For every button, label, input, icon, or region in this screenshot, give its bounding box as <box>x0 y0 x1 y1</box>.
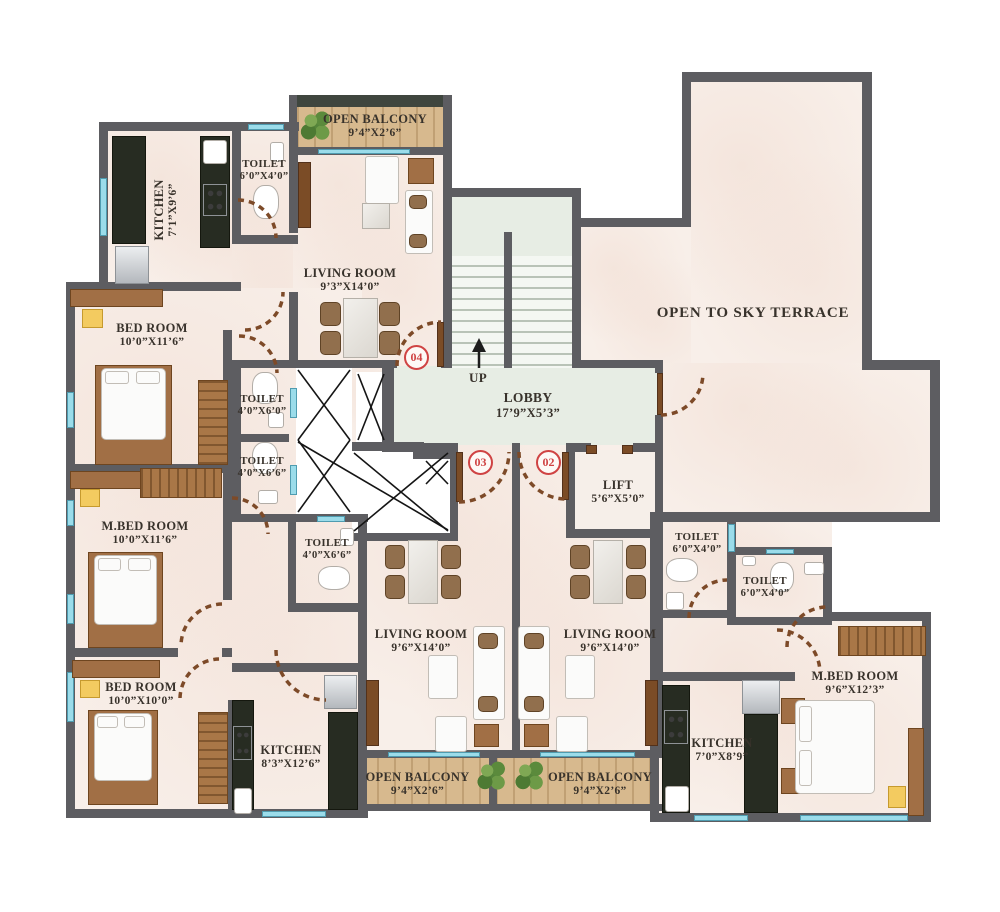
dining-chair <box>441 575 461 599</box>
plant <box>476 758 508 794</box>
side-table <box>408 158 434 184</box>
room-label-toilet-mid3: TOILET 4’0”X6’6” <box>292 537 362 562</box>
room-label-bedroom-04: BED ROOM 10’0”X11’6” <box>87 321 217 349</box>
fridge <box>324 675 357 709</box>
dining-table <box>593 540 623 604</box>
bed-pillow <box>98 558 121 571</box>
wall <box>655 363 663 373</box>
unit-badge-04: 04 <box>404 345 429 370</box>
room-label-balcony-br: OPEN BALCONY 9’4”X2’6” <box>535 770 665 798</box>
tv-unit <box>366 680 379 746</box>
room-name: LIFT <box>603 478 633 492</box>
floor-plan: KITCHEN 7’1”X9’6” TOILET 6’0”X4’0” OPEN … <box>0 0 1000 912</box>
up-text: UP <box>469 370 487 385</box>
room-label-toilet-mid1: TOILET 4’0”X6’0” <box>227 393 297 418</box>
room-name: LIVING ROOM <box>304 266 397 280</box>
stair-flight-right <box>512 256 572 368</box>
room-label-terrace: OPEN TO SKY TERRACE <box>633 305 873 322</box>
wall <box>736 617 832 625</box>
window <box>318 149 410 154</box>
room-name: KITCHEN <box>691 736 752 750</box>
bed-pillow <box>124 716 145 728</box>
unit-number: 03 <box>475 455 487 470</box>
room-dim: 5’6”X5’0” <box>578 493 658 506</box>
wall <box>232 122 241 244</box>
fridge <box>115 246 149 284</box>
room-dim: 9’6”X14’0” <box>356 642 486 655</box>
coffee-table <box>565 655 595 699</box>
room-label-balcony-bl: OPEN BALCONY 9’4”X2’6” <box>355 770 480 798</box>
toilet-sink <box>804 562 824 575</box>
dresser <box>72 660 160 678</box>
room-label-living-04: LIVING ROOM 9’3”X14’0” <box>285 266 415 294</box>
coffee-table <box>428 655 458 699</box>
wall <box>566 529 663 538</box>
kitchen-sink <box>203 140 227 164</box>
toilet-sink <box>742 556 756 566</box>
room-name: TOILET <box>242 158 286 170</box>
stairs-up-label: UP <box>458 370 498 385</box>
bed-pillow <box>799 706 812 742</box>
bed-pillow <box>799 750 812 786</box>
room-name: TOILET <box>240 393 284 405</box>
toilet-wc <box>318 566 350 590</box>
wall <box>581 218 691 227</box>
dresser <box>70 289 163 307</box>
room-name: OPEN BALCONY <box>323 112 427 126</box>
room-label-mbed-01: M.BED ROOM 9’6”X12’3” <box>785 669 925 697</box>
wall <box>823 547 832 621</box>
window <box>67 392 74 428</box>
dining-chair <box>385 575 405 599</box>
room-name: LOBBY <box>504 390 553 405</box>
wall <box>358 804 664 811</box>
room-label-toilet-01b: TOILET 6’0”X4’0” <box>727 575 803 600</box>
dining-chair <box>379 331 400 355</box>
window <box>67 594 74 624</box>
wall <box>222 648 232 657</box>
room-dim: 9’3”X14’0” <box>285 281 415 294</box>
wardrobe <box>198 380 228 465</box>
bed-pillow <box>136 371 160 384</box>
room-name: TOILET <box>675 531 719 543</box>
bed-pillow <box>105 371 129 384</box>
wardrobe <box>198 712 228 804</box>
tv-unit <box>298 162 311 228</box>
toilet-sink <box>258 490 278 504</box>
wall <box>352 533 458 541</box>
room-label-toilet-mid2: TOILET 4’0”X6’6” <box>227 455 297 480</box>
wall <box>241 434 289 442</box>
side-table <box>524 724 549 747</box>
wall <box>633 443 663 452</box>
room-name: LIVING ROOM <box>375 627 468 641</box>
room-label-kitchen-04: KITCHEN 7’1”X9’6” <box>152 155 180 265</box>
dining-chair <box>320 331 341 355</box>
dining-chair <box>385 545 405 569</box>
room-dim: 7’1”X9’6” <box>167 155 180 265</box>
room-dim: 4’0”X6’0” <box>227 406 297 418</box>
wall <box>443 188 581 197</box>
room-dim: 6’0”X4’0” <box>727 588 803 600</box>
side-table <box>474 724 499 747</box>
room-name: KITCHEN <box>152 179 166 240</box>
floor-terrace-left <box>581 227 691 366</box>
room-label-balcony-top: OPEN BALCONY 9’4”X2’6” <box>310 112 440 140</box>
window <box>100 178 107 236</box>
dining-table <box>408 540 438 604</box>
window <box>800 815 908 821</box>
dining-chair <box>379 302 400 326</box>
room-label-lobby: LOBBY 17’9”X5’3” <box>458 390 598 420</box>
armchair <box>435 716 467 752</box>
room-name: M.BED ROOM <box>811 669 898 683</box>
wardrobe <box>140 468 222 498</box>
window <box>388 752 480 757</box>
window <box>67 672 74 722</box>
lift-door-jamb <box>586 445 597 454</box>
balcony-parapet <box>289 95 452 107</box>
wall <box>862 360 940 370</box>
dining-chair <box>626 575 646 599</box>
armchair <box>365 156 399 204</box>
stair-divider <box>504 232 512 368</box>
room-name: BED ROOM <box>105 680 177 694</box>
toilet-sink <box>666 592 684 610</box>
room-name: M.BED ROOM <box>101 519 188 533</box>
window <box>262 811 326 817</box>
sofa-cushion <box>409 234 427 248</box>
room-name: TOILET <box>240 455 284 467</box>
room-name: BED ROOM <box>116 321 188 335</box>
room-dim: 4’0”X6’6” <box>227 468 297 480</box>
room-dim: 9’4”X2’6” <box>355 785 480 798</box>
dining-chair <box>441 545 461 569</box>
stool <box>888 786 906 808</box>
room-label-toilet-01a: TOILET 6’0”X4’0” <box>659 531 735 556</box>
room-label-mbed-left: M.BED ROOM 10’0”X11’6” <box>75 519 215 547</box>
dining-table <box>343 298 378 358</box>
wall <box>232 235 298 244</box>
kitchen-cabinet <box>112 136 146 244</box>
toilet-wc <box>666 558 698 582</box>
room-dim: 10’0”X11’6” <box>75 534 215 547</box>
wall <box>862 72 872 370</box>
kitchen-sink <box>234 788 252 814</box>
room-dim: 10’0”X11’6” <box>87 336 217 349</box>
bed-pillow <box>97 716 118 728</box>
door-leaf <box>437 322 444 367</box>
stair-flight-left <box>452 256 504 368</box>
door-leaf <box>657 373 663 415</box>
door-leaf <box>562 452 569 500</box>
wall <box>682 72 691 224</box>
toilet-wc <box>253 185 279 219</box>
wall <box>650 610 736 618</box>
wall <box>682 72 872 82</box>
wall <box>223 464 232 600</box>
wall <box>572 188 581 368</box>
wardrobe <box>838 626 926 656</box>
kitchen-sink <box>665 786 689 812</box>
room-label-toilet-04: TOILET 6’0”X4’0” <box>229 158 299 183</box>
room-dim: 8’3”X12’6” <box>226 758 356 771</box>
sofa-cushion <box>409 195 427 209</box>
room-dim: 7’0”X8’9” <box>657 751 787 764</box>
wall <box>382 360 390 452</box>
wall <box>232 663 367 672</box>
room-label-living-02: LIVING ROOM 9’6”X14’0” <box>545 627 675 655</box>
wall <box>232 360 368 368</box>
dining-chair <box>570 545 590 569</box>
window <box>248 124 284 130</box>
stool <box>80 489 100 507</box>
room-label-bedroom-3: BED ROOM 10’0”X10’0” <box>76 680 206 708</box>
room-name: TOILET <box>305 537 349 549</box>
wall <box>289 292 298 368</box>
unit-number: 04 <box>411 350 423 365</box>
lift-door-jamb <box>622 445 633 454</box>
window <box>694 815 748 821</box>
window <box>540 752 635 757</box>
room-label-lift: LIFT 5’6”X5’0” <box>578 478 658 506</box>
unit-badge-02: 02 <box>536 450 561 475</box>
dining-chair <box>570 575 590 599</box>
duct-void-1 <box>296 368 352 514</box>
room-dim: 6’0”X4’0” <box>229 171 299 183</box>
room-label-kitchen-01: KITCHEN 7’0”X8’9” <box>657 736 787 764</box>
wall <box>66 648 178 657</box>
washing-machine <box>742 680 780 714</box>
room-dim: 6’0”X4’0” <box>659 544 735 556</box>
wall <box>288 522 296 612</box>
wall <box>443 188 452 368</box>
room-dim: 4’0”X6’6” <box>292 550 362 562</box>
room-dim: 9’4”X2’6” <box>535 785 665 798</box>
armchair <box>556 716 588 752</box>
wall <box>930 360 940 522</box>
room-dim: 9’4”X2’6” <box>310 127 440 140</box>
duct-void-4 <box>424 459 450 486</box>
room-dim: 9’6”X12’3” <box>785 684 925 697</box>
wall <box>288 603 367 612</box>
stove <box>203 184 227 216</box>
floor-terrace-lower <box>663 363 931 513</box>
unit-number: 02 <box>543 455 555 470</box>
room-label-living-03: LIVING ROOM 9’6”X14’0” <box>356 627 486 655</box>
wall <box>232 360 241 522</box>
bed-pillow <box>128 558 151 571</box>
dining-chair <box>320 302 341 326</box>
window <box>317 516 345 522</box>
coffee-table <box>362 203 390 229</box>
room-dim: 9’6”X14’0” <box>545 642 675 655</box>
room-dim: 17’9”X5’3” <box>458 406 598 421</box>
wall <box>650 512 940 522</box>
room-dim: 10’0”X10’0” <box>76 695 206 708</box>
wall <box>289 95 297 150</box>
wall <box>832 612 931 621</box>
room-name: OPEN BALCONY <box>366 770 470 784</box>
door-leaf <box>456 452 463 502</box>
room-name: TOILET <box>743 575 787 587</box>
room-name: KITCHEN <box>260 743 321 757</box>
wall <box>581 360 663 368</box>
window <box>67 500 74 526</box>
room-name: OPEN TO SKY TERRACE <box>657 305 850 321</box>
wall <box>232 514 368 522</box>
dining-chair <box>626 545 646 569</box>
wall <box>66 282 75 818</box>
room-name: OPEN BALCONY <box>548 770 652 784</box>
wall <box>382 443 458 452</box>
unit-badge-03: 03 <box>468 450 493 475</box>
room-label-kitchen-03: KITCHEN 8’3”X12’6” <box>226 743 356 771</box>
room-name: LIVING ROOM <box>564 627 657 641</box>
sofa-cushion <box>524 696 544 712</box>
sofa-cushion <box>524 633 544 649</box>
sofa-cushion <box>478 696 498 712</box>
window <box>766 549 794 554</box>
dresser <box>908 728 924 816</box>
